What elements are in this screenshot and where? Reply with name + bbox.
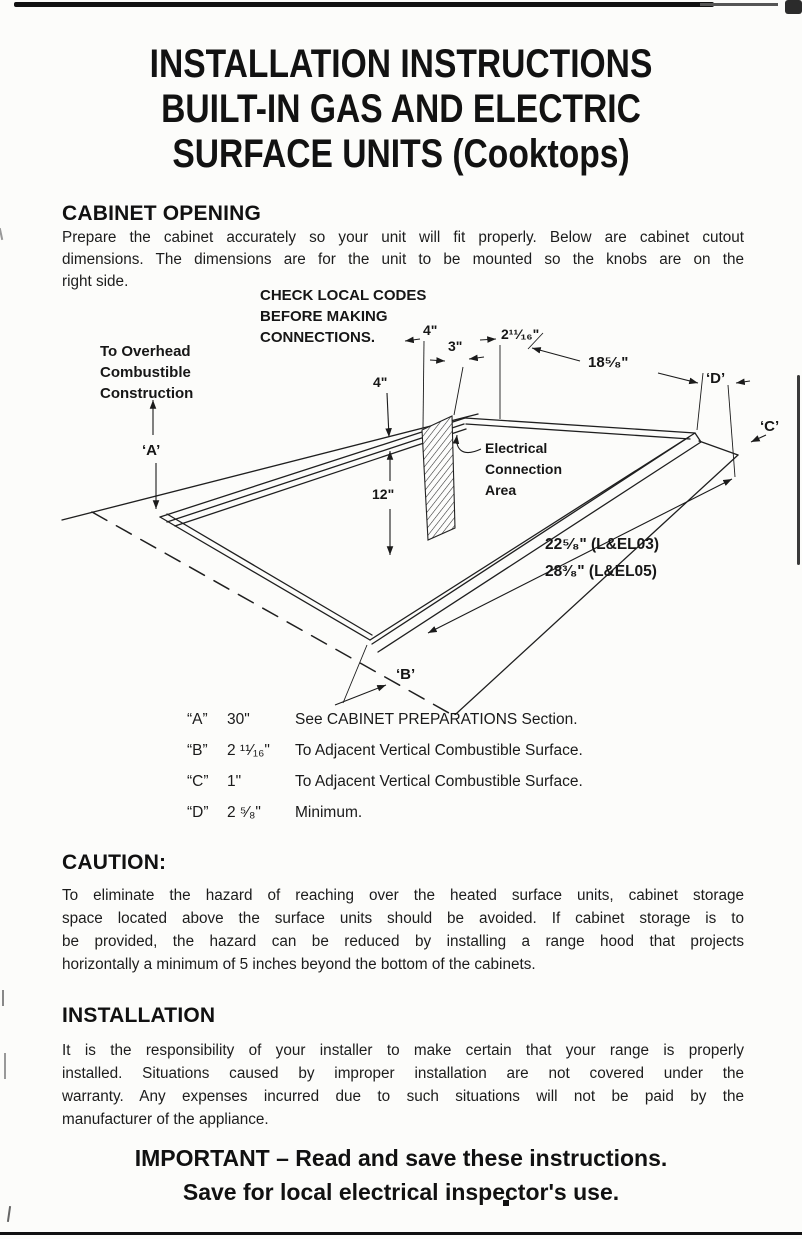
paragraph-line: warranty. Any expenses incurred due to s… xyxy=(62,1085,744,1108)
cutout-front-left-rim xyxy=(160,517,370,640)
dim-label-d: ‘D’ xyxy=(706,370,725,387)
counter-back-edge xyxy=(62,414,478,520)
dim-description: Minimum. xyxy=(295,804,747,822)
dim-value: 2 ⁵⁄₈" xyxy=(227,804,295,822)
dim-d-arrow xyxy=(736,381,750,383)
dim-label-top-3: 3" xyxy=(448,338,462,354)
dim-letter: “C” xyxy=(187,773,227,791)
dim-label-width-el03: 22⁵⁄₈" (L&EL03) xyxy=(545,536,659,553)
dim-3-arrow-left xyxy=(430,360,445,361)
dim-3-arrow-right xyxy=(469,357,484,359)
ext-line-d-left xyxy=(697,373,703,430)
dim-top-4-arrow xyxy=(405,339,420,341)
dim-value: 1" xyxy=(227,773,295,791)
scan-top-bar-tail xyxy=(700,3,778,6)
electrical-connection-hatch-area xyxy=(422,416,455,540)
overhead-label-line-1: To Overhead xyxy=(100,343,191,360)
overhead-label-line-3: Construction xyxy=(100,385,193,402)
electrical-label-line-1: Electrical xyxy=(485,440,547,456)
scan-bottom-line xyxy=(0,1232,802,1235)
cutout-back-right-rim-2 xyxy=(466,424,690,439)
dim-label-top-4: 4" xyxy=(423,322,437,338)
dim-label-18-5-8: 18⁵⁄₈" xyxy=(588,354,628,371)
dim-value: 2 ¹¹⁄₁₆" xyxy=(227,742,295,760)
dim-description: To Adjacent Vertical Combustible Surface… xyxy=(295,773,747,791)
scan-left-tick-2 xyxy=(4,1053,6,1079)
table-row: “C” 1" To Adjacent Vertical Combustible … xyxy=(187,773,747,804)
scan-top-bar xyxy=(14,2,714,7)
paragraph-line: horizontally a minimum of 5 inches beyon… xyxy=(62,953,744,976)
installation-heading: INSTALLATION xyxy=(62,1004,215,1028)
dim-b-arrow xyxy=(335,685,386,705)
scan-corner-blob xyxy=(785,0,802,14)
dim-18-arrow-left xyxy=(532,348,580,361)
paragraph-line: It is the responsibility of your install… xyxy=(62,1039,744,1062)
cutout-front-left-rim-2 xyxy=(167,514,372,635)
paragraph-line: Prepare the cabinet accurately so your u… xyxy=(62,227,744,249)
check-codes-line-1: CHECK LOCAL CODES xyxy=(260,287,426,304)
dim-label-c: ‘C’ xyxy=(760,418,779,435)
paragraph-line: be provided, the hazard can be reduced b… xyxy=(62,930,744,953)
paragraph-line: installed. Situations caused by improper… xyxy=(62,1062,744,1085)
dim-label-b: ‘B’ xyxy=(396,666,415,683)
overhead-label-line-2: Combustible xyxy=(100,364,191,381)
cutout-back-right-rim xyxy=(465,418,695,433)
paragraph-line: manufacturer of the appliance. xyxy=(62,1108,744,1131)
counter-front-left-edge-dashed xyxy=(92,512,488,715)
dim-left-4-arrow xyxy=(387,393,389,437)
rim-end-cap xyxy=(695,433,701,442)
dim-width-arrow xyxy=(428,479,732,633)
title-line-3: SURFACE UNITS (Cooktops) xyxy=(64,132,738,177)
dim-label-2-11-16: 2¹¹⁄₁₆" xyxy=(501,326,539,342)
dim-label-left-4: 4" xyxy=(373,374,387,390)
dim-label-width-el05: 28³⁄₈" (L&EL05) xyxy=(545,563,657,580)
scan-left-tick-1 xyxy=(2,990,4,1006)
dim-18-arrow-right xyxy=(658,373,698,383)
dim-letter: “A” xyxy=(187,711,227,729)
footer-line-2: Save for local electrical inspector's us… xyxy=(0,1175,802,1209)
ext-line-strip-left xyxy=(423,341,424,428)
check-codes-line-2: BEFORE MAKING xyxy=(260,308,388,325)
check-codes-line-3: CONNECTIONS. xyxy=(260,329,375,346)
cutout-back-left-rim xyxy=(160,418,465,517)
dim-description: See CABINET PREPARATIONS Section. xyxy=(295,711,747,729)
dim-label-12: 12" xyxy=(372,486,394,502)
important-footer: IMPORTANT – Read and save these instruct… xyxy=(0,1141,802,1209)
dimension-lines xyxy=(153,333,766,705)
dimension-table: “A” 30" See CABINET PREPARATIONS Section… xyxy=(187,711,747,835)
caution-paragraph: To eliminate the hazard of reaching over… xyxy=(62,884,744,976)
title-line-1: INSTALLATION INSTRUCTIONS xyxy=(64,42,738,87)
electrical-label-line-3: Area xyxy=(485,482,516,498)
dim-c-arrow xyxy=(751,435,766,442)
dim-letter: “B” xyxy=(187,742,227,760)
electrical-leader-line xyxy=(457,435,481,453)
document-title: INSTALLATION INSTRUCTIONS BUILT-IN GAS A… xyxy=(64,42,738,177)
caution-heading: CAUTION: xyxy=(62,851,166,875)
cutout-back-left-rim-2 xyxy=(167,424,464,522)
cabinet-cutout-diagram: CHECK LOCAL CODES BEFORE MAKING CONNECTI… xyxy=(60,283,800,715)
dim-letter: “D” xyxy=(187,804,227,822)
title-line-2: BUILT-IN GAS AND ELECTRIC xyxy=(64,87,738,132)
dim-label-a: ‘A’ xyxy=(142,442,160,459)
paragraph-line: dimensions. The dimensions are for the u… xyxy=(62,249,744,271)
paragraph-line: space located above the surface units sh… xyxy=(62,907,744,930)
dim-2-11-16-arrow xyxy=(480,339,496,340)
electrical-label-line-2: Connection xyxy=(485,461,562,477)
dim-description: To Adjacent Vertical Combustible Surface… xyxy=(295,742,747,760)
installation-paragraph: It is the responsibility of your install… xyxy=(62,1039,744,1131)
scanned-document-page: INSTALLATION INSTRUCTIONS BUILT-IN GAS A… xyxy=(0,0,802,1239)
dim-value: 30" xyxy=(227,711,295,729)
scan-left-tick-4 xyxy=(0,228,3,240)
cabinet-opening-heading: CABINET OPENING xyxy=(62,202,261,226)
table-row: “B” 2 ¹¹⁄₁₆" To Adjacent Vertical Combus… xyxy=(187,742,747,773)
table-row: “D” 2 ⁵⁄₈" Minimum. xyxy=(187,804,747,835)
ext-line-strip-right xyxy=(454,367,463,415)
table-row: “A” 30" See CABINET PREPARATIONS Section… xyxy=(187,711,747,742)
footer-line-1: IMPORTANT – Read and save these instruct… xyxy=(0,1141,802,1175)
paragraph-line: To eliminate the hazard of reaching over… xyxy=(62,884,744,907)
